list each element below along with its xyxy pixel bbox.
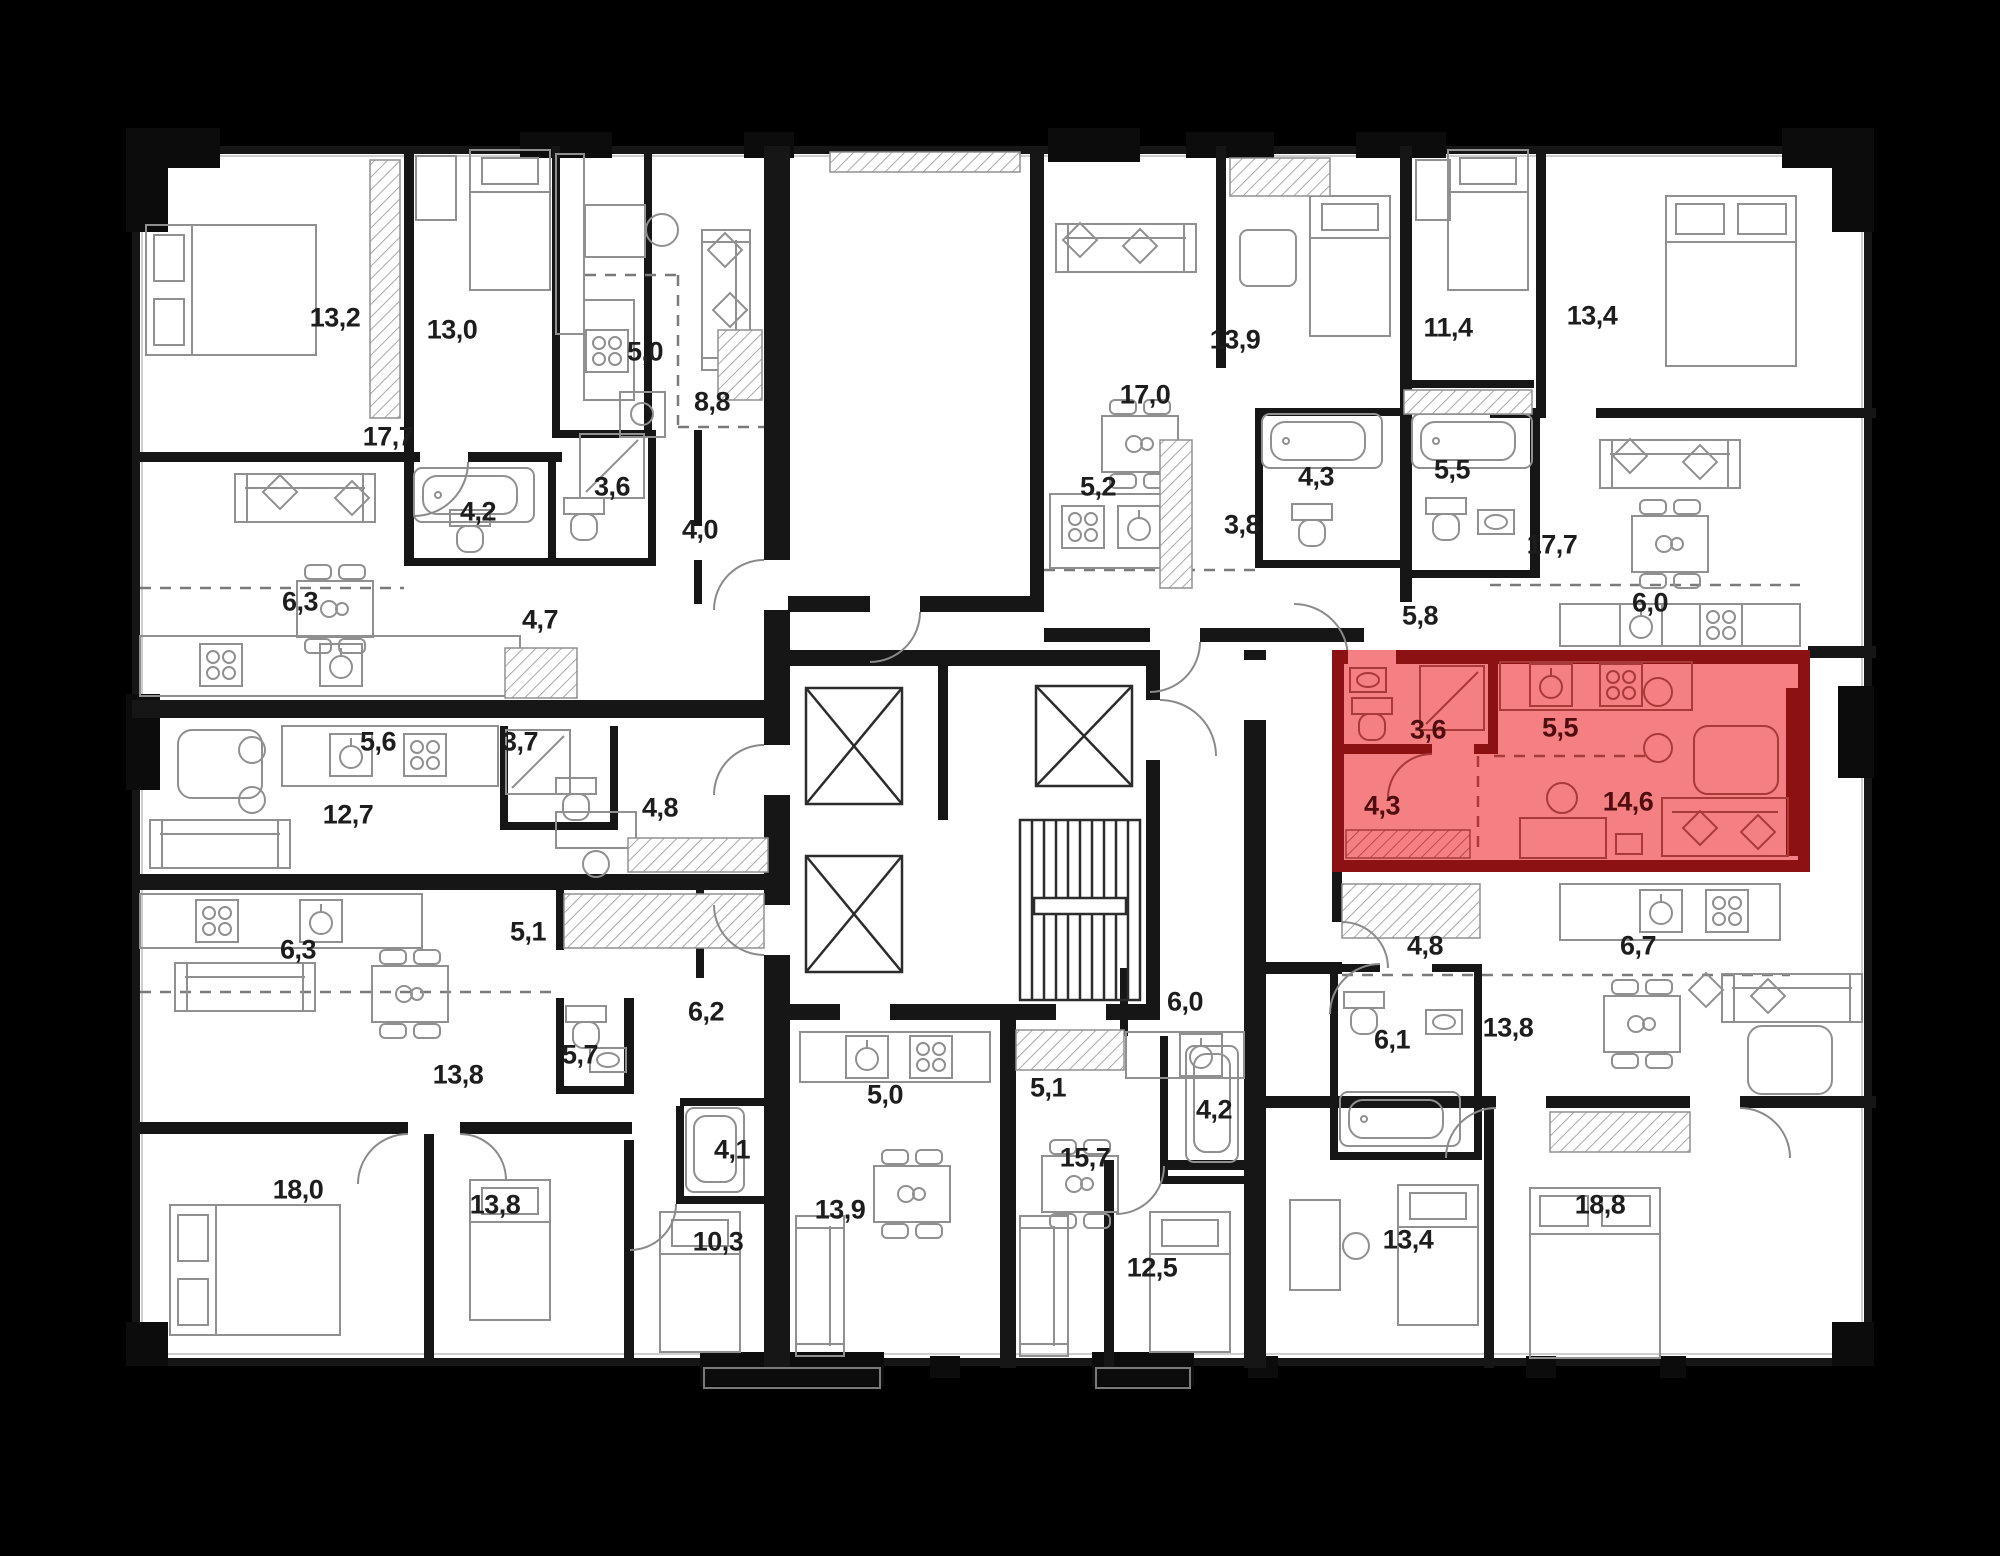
room-area-label: 4,2 bbox=[1196, 1097, 1232, 1124]
room-area-label: 6,0 bbox=[1632, 590, 1668, 617]
room-area-label: 4,3 bbox=[1298, 464, 1334, 491]
room-area-label: 4,2 bbox=[460, 499, 496, 526]
room-area-label: 4,8 bbox=[642, 795, 678, 822]
room-area-label: 13,8 bbox=[470, 1192, 521, 1219]
room-area-label: 13,4 bbox=[1567, 303, 1618, 330]
room-area-label: 6,7 bbox=[1620, 933, 1656, 960]
room-area-label: 6,3 bbox=[282, 589, 318, 616]
room-area-label: 5,5 bbox=[1434, 457, 1470, 484]
room-area-label: 4,0 bbox=[682, 517, 718, 544]
room-area-label: 5,8 bbox=[1402, 603, 1438, 630]
room-area-label: 17,0 bbox=[1120, 382, 1171, 409]
room-area-label: 5,7 bbox=[562, 1042, 598, 1069]
room-area-label: 13,2 bbox=[310, 305, 361, 332]
room-area-label: 5,0 bbox=[627, 339, 663, 366]
room-area-label: 4,7 bbox=[522, 607, 558, 634]
room-area-label: 5,1 bbox=[1030, 1075, 1066, 1102]
room-area-label: 6,2 bbox=[688, 999, 724, 1026]
room-area-label: 13,9 bbox=[1210, 327, 1261, 354]
room-area-label: 5,2 bbox=[1080, 474, 1116, 501]
room-area-label: 5,5 bbox=[1542, 715, 1578, 742]
room-area-label: 13,8 bbox=[1483, 1015, 1534, 1042]
room-area-label: 6,1 bbox=[1374, 1027, 1410, 1054]
room-area-label: 11,4 bbox=[1423, 315, 1472, 342]
room-area-label: 4,8 bbox=[1407, 933, 1443, 960]
floor-plan-canvas: 13,213,05,08,817,74,23,64,06,34,75,63,71… bbox=[0, 0, 2000, 1556]
room-area-label: 8,8 bbox=[694, 389, 730, 416]
room-area-label: 5,1 bbox=[510, 919, 546, 946]
room-area-label: 3,6 bbox=[594, 474, 630, 501]
room-area-label: 12,7 bbox=[323, 802, 374, 829]
room-area-label: 13,9 bbox=[815, 1197, 866, 1224]
room-area-label: 6,3 bbox=[280, 937, 316, 964]
room-area-label: 18,0 bbox=[273, 1177, 324, 1204]
room-area-label: 18,8 bbox=[1575, 1192, 1626, 1219]
room-area-label: 13,8 bbox=[433, 1062, 484, 1089]
room-area-label: 17,7 bbox=[363, 424, 414, 451]
room-area-label: 4,3 bbox=[1364, 793, 1400, 820]
room-area-label: 5,0 bbox=[867, 1082, 903, 1109]
room-area-label: 6,0 bbox=[1167, 989, 1203, 1016]
room-area-label: 13,0 bbox=[427, 317, 478, 344]
room-area-label: 14,6 bbox=[1603, 789, 1654, 816]
room-area-label: 15,7 bbox=[1060, 1145, 1111, 1172]
room-area-label: 12,5 bbox=[1127, 1255, 1178, 1282]
room-area-label: 17,7 bbox=[1527, 532, 1578, 559]
room-area-label: 5,6 bbox=[360, 729, 396, 756]
room-area-label: 10,3 bbox=[693, 1229, 744, 1256]
room-area-label: 4,1 bbox=[714, 1137, 750, 1164]
room-area-labels: 13,213,05,08,817,74,23,64,06,34,75,63,71… bbox=[0, 0, 2000, 1556]
room-area-label: 3,6 bbox=[1410, 717, 1446, 744]
room-area-label: 13,4 bbox=[1383, 1227, 1434, 1254]
room-area-label: 3,7 bbox=[502, 729, 538, 756]
room-area-label: 3,8 bbox=[1224, 512, 1260, 539]
